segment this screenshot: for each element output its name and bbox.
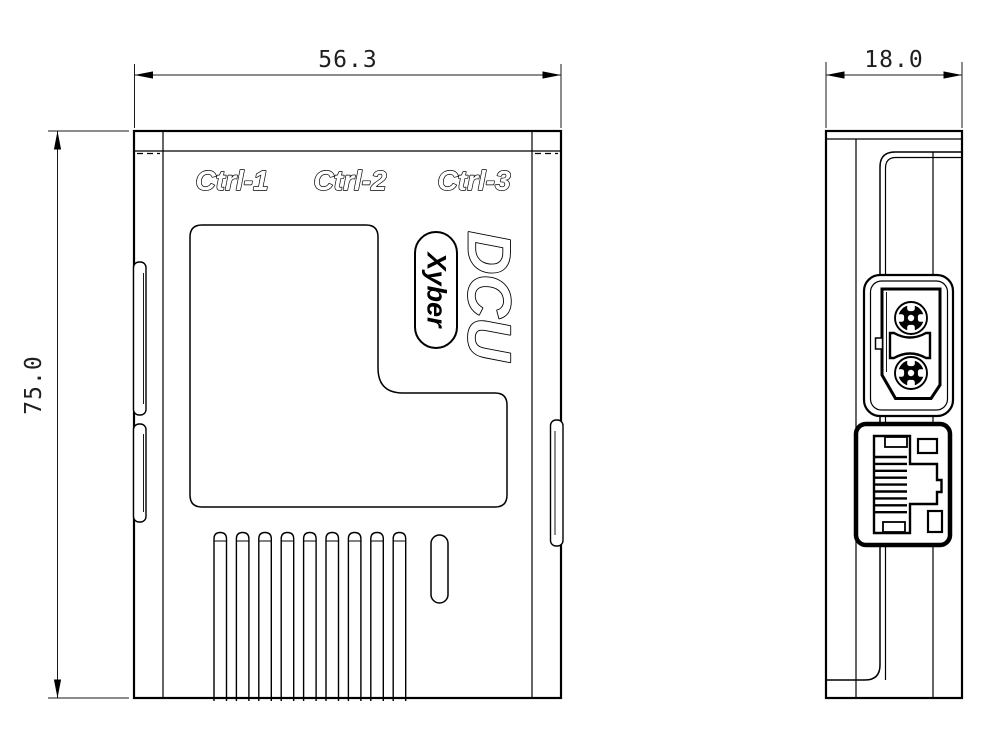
dimension-front-width: 56.3 bbox=[135, 47, 562, 128]
mounting-clip-left-lower bbox=[134, 424, 147, 522]
side-depth-value: 18.0 bbox=[864, 47, 923, 73]
front-height-value: 75.0 bbox=[21, 355, 47, 414]
port-label-ctrl1: Ctrl-1 bbox=[195, 165, 268, 196]
bowtie-separator bbox=[890, 333, 930, 358]
product-name: DCU bbox=[456, 231, 523, 363]
power-pin-positive bbox=[895, 302, 927, 334]
arrowhead-down-icon bbox=[54, 680, 61, 699]
arrowhead-left-icon bbox=[135, 71, 154, 78]
arrowhead-right-icon bbox=[944, 71, 963, 78]
arrowhead-right-icon bbox=[543, 71, 562, 78]
rj45-ethernet-port bbox=[856, 424, 950, 545]
port-label-ctrl2: Ctrl-2 bbox=[313, 165, 387, 196]
brand-name: Xyber bbox=[422, 250, 452, 329]
power-pin-negative bbox=[895, 357, 927, 389]
rj45-latch-slot-top bbox=[918, 439, 937, 453]
dimension-side-depth: 18.0 bbox=[826, 47, 962, 128]
port-label-ctrl3: Ctrl-3 bbox=[437, 165, 511, 196]
product-name-group: DCU bbox=[456, 231, 523, 363]
dimension-front-height: 75.0 bbox=[21, 131, 129, 698]
mounting-clip-left-upper bbox=[134, 262, 147, 415]
brand-badge: Xyber bbox=[415, 232, 457, 348]
keying-notch bbox=[876, 338, 883, 349]
front-view: Ctrl-1 Ctrl-2 Ctrl-3 DCU Xyber bbox=[134, 131, 564, 701]
front-width-value: 56.3 bbox=[318, 47, 377, 73]
xt30-power-connector bbox=[864, 275, 953, 416]
rj45-latch-slot-bottom bbox=[928, 511, 942, 532]
arrowhead-up-icon bbox=[54, 131, 61, 150]
technical-drawing-canvas: 56.3 75.0 18.0 bbox=[0, 0, 1000, 737]
side-view bbox=[826, 131, 962, 698]
mounting-clip-right bbox=[551, 420, 564, 546]
arrowhead-left-icon bbox=[826, 71, 845, 78]
enclosure-body-front bbox=[134, 131, 561, 698]
